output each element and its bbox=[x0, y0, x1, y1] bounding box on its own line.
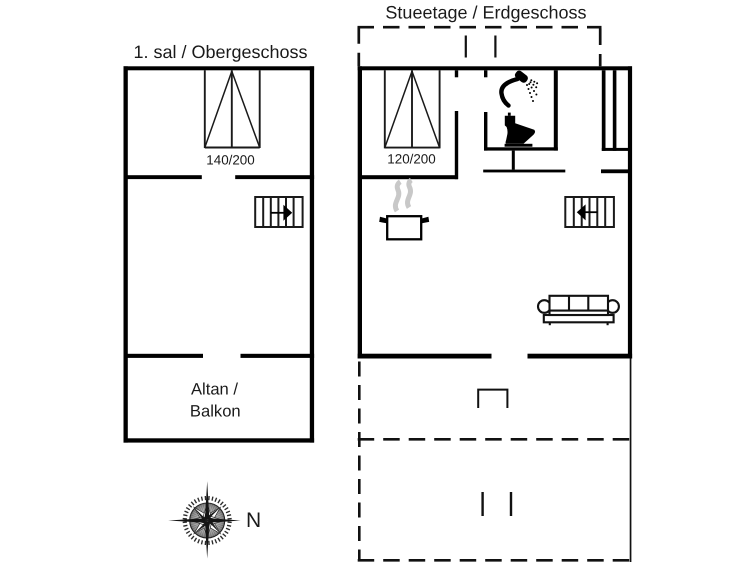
svg-text:Balkon: Balkon bbox=[190, 402, 241, 421]
svg-text:120/200: 120/200 bbox=[387, 151, 435, 166]
svg-text:Stueetage / Erdgeschoss: Stueetage / Erdgeschoss bbox=[385, 3, 586, 23]
svg-text:N: N bbox=[246, 509, 261, 532]
svg-text:140/200: 140/200 bbox=[206, 153, 254, 168]
svg-text:1. sal / Obergeschoss: 1. sal / Obergeschoss bbox=[133, 42, 307, 62]
svg-text:Altan /: Altan / bbox=[191, 380, 238, 399]
